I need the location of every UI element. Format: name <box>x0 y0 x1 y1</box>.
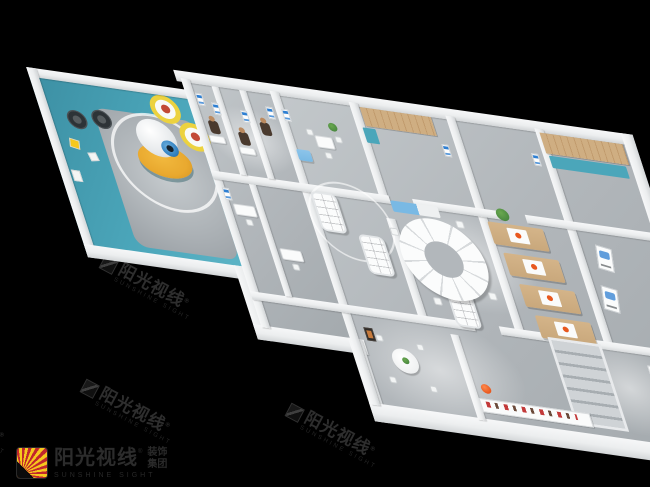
registered-mark: ® <box>138 449 142 455</box>
watermark: 阳光视线® SUNSHINE SIGHT <box>0 386 15 456</box>
sunshine-logo-icon <box>16 447 48 479</box>
brand-name-en: SUNSHINE SIGHT <box>54 472 167 479</box>
watermark-text: 阳光视线® SUNSHINE SIGHT <box>0 395 15 457</box>
brand-text: 阳光视线 ® 装饰 集团 SUNSHINE SIGHT <box>54 448 167 479</box>
brand-suffix-bottom: 集团 <box>147 460 167 470</box>
watermark-cn: 阳光视线® <box>0 395 15 450</box>
brand-suffix-top: 装饰 <box>147 448 167 458</box>
sunshine-wm-icon <box>80 379 100 399</box>
eye-chart-graphic <box>160 104 172 114</box>
render-canvas: 阳光视线® SUNSHINE SIGHT 阳光视线® SUNSHINE SIGH… <box>0 0 650 487</box>
brand-name-cn: 阳光视线 <box>54 448 138 468</box>
brand-row: 阳光视线 ® 装饰 集团 <box>54 448 167 470</box>
brand-suffix: 装饰 集团 <box>147 448 167 470</box>
eyeball-pupil <box>165 145 174 153</box>
brand-logo: 阳光视线 ® 装饰 集团 SUNSHINE SIGHT <box>16 447 167 479</box>
logo-corner-triangle <box>17 460 35 478</box>
